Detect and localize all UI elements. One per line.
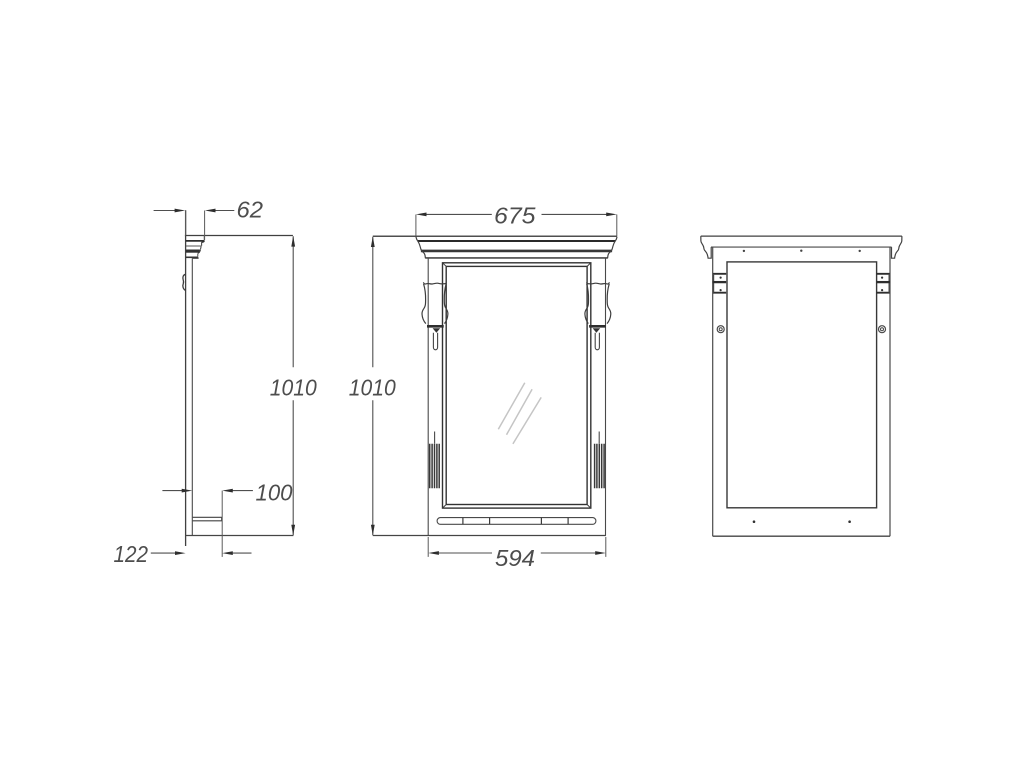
svg-text:1010: 1010	[349, 375, 396, 401]
svg-text:594: 594	[495, 545, 535, 571]
svg-text:122: 122	[114, 541, 149, 567]
svg-text:100: 100	[256, 480, 293, 506]
svg-text:62: 62	[237, 197, 264, 223]
svg-text:675: 675	[494, 202, 536, 228]
svg-text:1010: 1010	[270, 375, 317, 401]
